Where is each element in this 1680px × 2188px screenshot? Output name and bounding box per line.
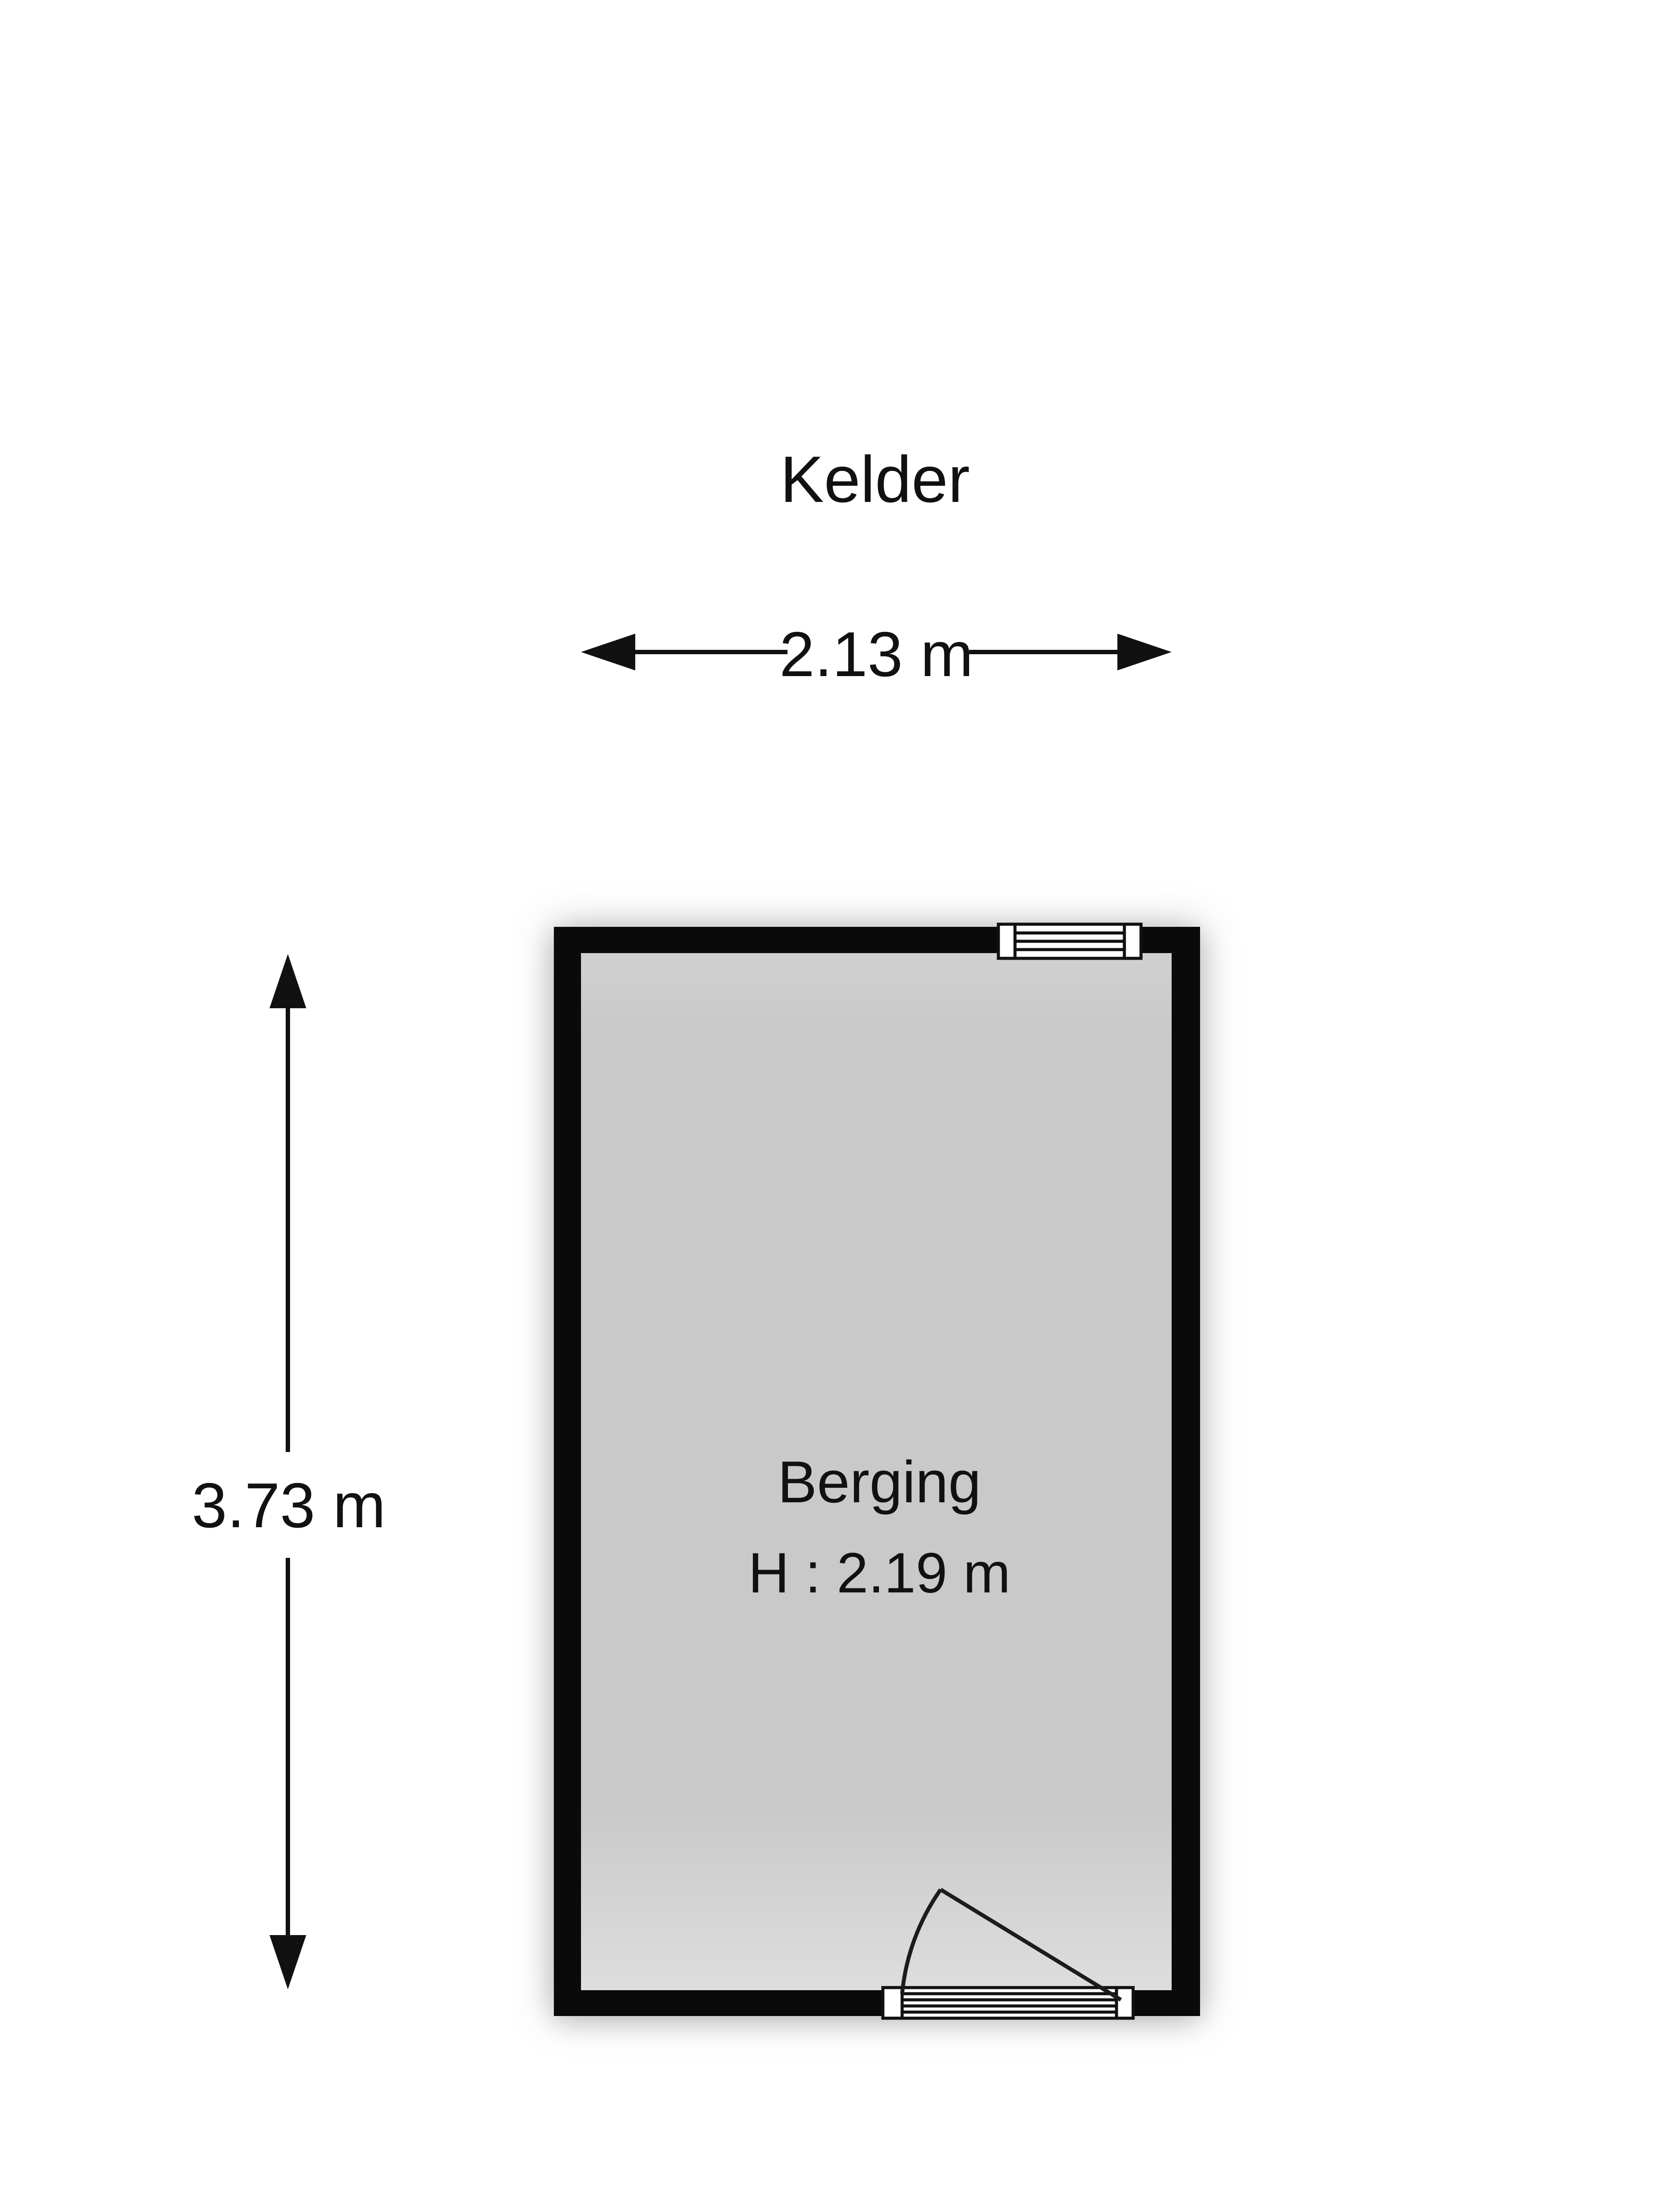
window-symbol [998, 924, 1141, 958]
height-dimension-label: 3.73 m [192, 1470, 385, 1541]
room-name-label: Berging [777, 1449, 981, 1515]
width-dimension-label: 2.13 m [779, 619, 973, 690]
floorplan-canvas: Kelder 2.13 m 3.73 m [0, 0, 1680, 2188]
room-berging: Berging H : 2.19 m [554, 924, 1200, 2018]
door-opening [883, 1988, 1133, 2018]
room-height-label: H : 2.19 m [748, 1541, 1011, 1605]
page-title: Kelder [780, 442, 970, 516]
